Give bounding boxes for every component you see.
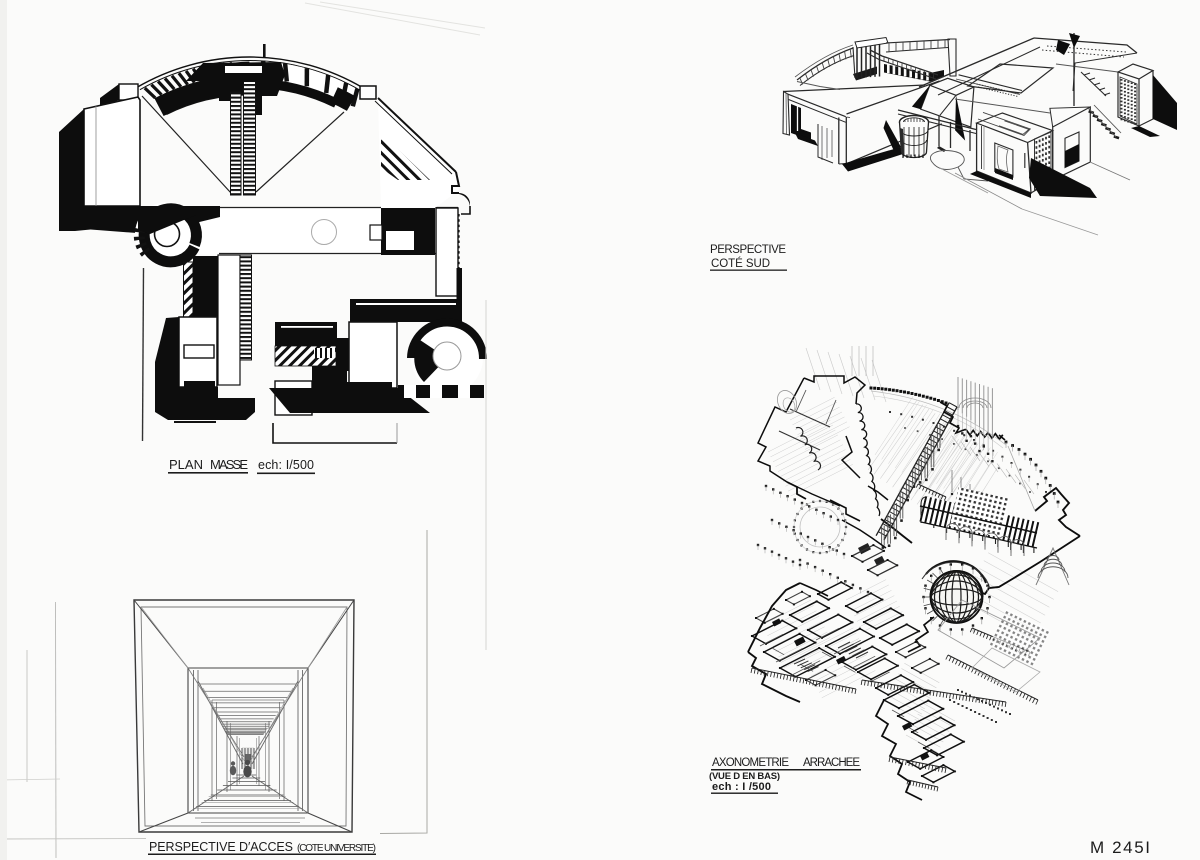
svg-text:(COTE UNIVERSITE): (COTE UNIVERSITE) [297,843,376,854]
svg-text:PERSPECTIVE D′ACCES: PERSPECTIVE D′ACCES [149,840,293,854]
svg-text:ech: I/500: ech: I/500 [258,458,314,472]
svg-text:ech : I /500: ech : I /500 [712,781,771,793]
svg-text:M 245I: M 245I [1090,838,1150,857]
svg-text:PLAN: PLAN [169,457,203,472]
svg-text:PERSPECTIVE: PERSPECTIVE [710,244,786,256]
svg-text:MASSE: MASSE [210,457,248,472]
svg-text:ARRACHEE: ARRACHEE [803,757,860,769]
svg-text:AXONOMETRIE: AXONOMETRIE [712,757,789,769]
svg-text:COTÉ SUD: COTÉ SUD [711,257,770,270]
